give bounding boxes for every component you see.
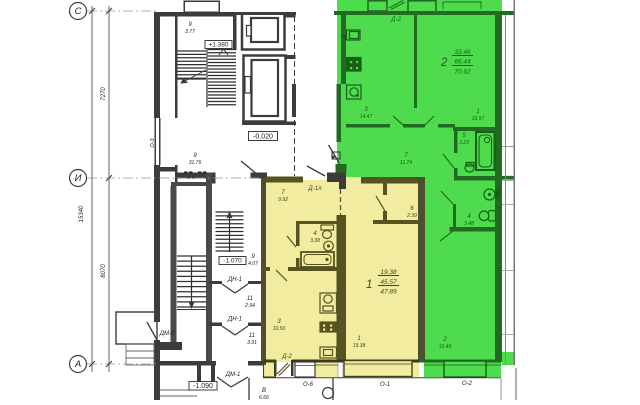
svg-text:ДМ-2: ДМ-2 xyxy=(159,331,175,337)
svg-text:16.49: 16.49 xyxy=(439,344,452,350)
svg-text:С: С xyxy=(75,6,82,17)
svg-text:60.5: 60.5 xyxy=(506,175,513,179)
svg-text:45.57: 45.57 xyxy=(380,279,397,286)
svg-text:14.47: 14.47 xyxy=(360,114,373,120)
svg-text:А: А xyxy=(74,359,81,370)
svg-text:9.92: 9.92 xyxy=(278,197,288,203)
svg-text:Д-1л: Д-1л xyxy=(308,186,323,192)
svg-text:3.48: 3.48 xyxy=(464,221,474,227)
svg-text:О-2: О-2 xyxy=(462,381,473,387)
svg-text:-1.090: -1.090 xyxy=(193,383,213,390)
svg-text:2: 2 xyxy=(440,57,448,69)
svg-text:1: 1 xyxy=(476,109,479,115)
svg-text:Д-2: Д-2 xyxy=(390,17,401,23)
svg-text:1: 1 xyxy=(357,336,360,342)
svg-text:-0.020: -0.020 xyxy=(253,134,273,141)
svg-text:2.39: 2.39 xyxy=(406,213,417,219)
svg-text:3.77: 3.77 xyxy=(185,29,195,35)
svg-text:О-1: О-1 xyxy=(380,382,390,388)
svg-text:31.76: 31.76 xyxy=(189,160,202,166)
svg-text:+1.380: +1.380 xyxy=(208,42,228,49)
svg-text:2.94: 2.94 xyxy=(244,303,255,309)
svg-text:3.91: 3.91 xyxy=(247,340,257,346)
svg-text:66.44: 66.44 xyxy=(454,59,471,66)
svg-text:И: И xyxy=(75,173,82,184)
svg-text:19.38: 19.38 xyxy=(380,269,397,276)
svg-text:ДН-1: ДН-1 xyxy=(227,317,242,323)
svg-text:16.97: 16.97 xyxy=(472,116,485,122)
svg-text:8070: 8070 xyxy=(101,264,107,278)
svg-text:4.07: 4.07 xyxy=(248,261,258,267)
svg-text:10.50: 10.50 xyxy=(273,326,286,332)
svg-text:33.46: 33.46 xyxy=(454,49,471,56)
svg-text:11: 11 xyxy=(249,333,255,339)
svg-text:Д-2: Д-2 xyxy=(281,354,292,360)
svg-text:В: В xyxy=(262,388,266,394)
svg-text:1: 1 xyxy=(366,279,372,291)
svg-text:О-6: О-6 xyxy=(303,382,314,388)
svg-text:47.89: 47.89 xyxy=(380,289,397,296)
svg-text:2: 2 xyxy=(442,337,447,343)
svg-text:6.66: 6.66 xyxy=(259,395,269,400)
svg-text:ДМ-1: ДМ-1 xyxy=(225,372,241,378)
svg-text:ДН-1: ДН-1 xyxy=(227,277,242,283)
svg-text:70.62: 70.62 xyxy=(454,69,471,76)
svg-text:11.74: 11.74 xyxy=(400,160,412,166)
svg-text:19.38: 19.38 xyxy=(353,343,366,349)
svg-text:О-3: О-3 xyxy=(150,137,156,147)
svg-text:7270: 7270 xyxy=(101,87,107,101)
svg-text:-1.070: -1.070 xyxy=(223,258,242,265)
svg-text:3.38: 3.38 xyxy=(310,238,320,244)
svg-text:15340: 15340 xyxy=(79,205,85,222)
svg-text:11: 11 xyxy=(247,296,253,302)
svg-text:3.29: 3.29 xyxy=(459,140,469,146)
